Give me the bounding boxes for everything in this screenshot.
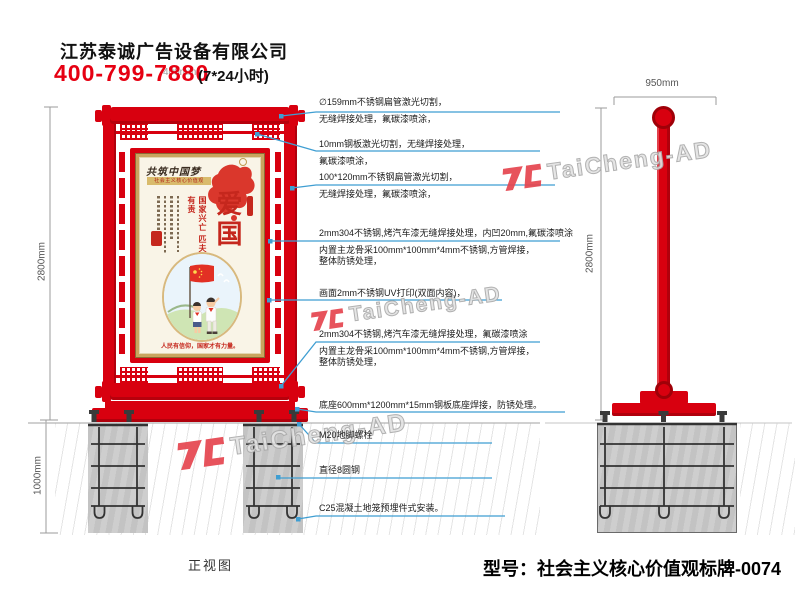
front-post-left [103, 121, 116, 393]
side-pole-joint [655, 381, 673, 399]
slogan-column-1: 国家兴亡 [198, 196, 207, 232]
drawing-canvas: 江苏泰诚广告设备有限公司 400mm 400-799-7880 (7*24小时)… [0, 0, 800, 600]
poster-seal-tag [247, 196, 253, 216]
annotation-line: 10mm钢板激光切割，无缝焊接处理， [319, 139, 470, 150]
annotation-line: M20地脚螺栓 [319, 430, 373, 441]
bottom-beam-endcap-left-outer [95, 386, 102, 398]
side-pole-cap [652, 106, 675, 129]
text-column [164, 196, 167, 254]
annotation-line: 画面2mm不锈钢UV打印(双面内容)， [319, 288, 466, 299]
poster-slogan: 国家兴亡 匹夫有责 [186, 196, 208, 260]
taicheng-logo-icon [492, 157, 544, 195]
annotation-line: 100*120mm不锈钢扁管激光切割， [319, 172, 458, 183]
annotation-line: 底座600mm*1200mm*15mm钢板底座焊接，防锈处理。 [319, 400, 542, 411]
lattice-rod [116, 375, 284, 378]
front-post-right [284, 121, 297, 393]
annotation-line: 整体防锈处理， [319, 256, 573, 267]
text-column [177, 196, 180, 252]
top-beam [110, 107, 290, 124]
front-view-label: 正视图 [188, 555, 233, 574]
annotation-line: ∅159mm不锈钢扁管激光切割， [319, 97, 447, 108]
footing-front-left [88, 424, 148, 533]
poster-headline: 爱国 [209, 190, 246, 250]
bottom-beam [110, 383, 290, 400]
footing-side-view [597, 424, 737, 533]
model-number-label: 型号：社会主义核心价值观标牌-0074 [483, 555, 781, 581]
top-lattice-row [116, 124, 284, 150]
top-beam-endcap-left-outer [95, 110, 102, 122]
poster-footer-quote: 人民有信仰，国家才有力量。 [142, 341, 258, 350]
annotation-8: M20地脚螺栓 [319, 430, 373, 441]
bottom-beam-endcap-right [289, 381, 298, 402]
kids-flag-illustration [164, 254, 240, 340]
ground-hatch-side [740, 423, 795, 535]
lattice-rod [116, 131, 284, 134]
top-beam-endcap-right-outer [298, 110, 305, 122]
annotation-2: 10mm钢板激光切割，无缝焊接处理， 氟碳漆喷涂， [319, 139, 470, 167]
lattice-strip-left [119, 152, 125, 357]
annotation-line: 氟碳漆喷涂， [319, 156, 470, 167]
poster-subtitle-band: 社会主义核心价值观 [147, 177, 211, 185]
annotation-9: 直径8圆钢 [319, 465, 360, 476]
annotation-7: 底座600mm*1200mm*15mm钢板底座焊接，防锈处理。 [319, 400, 542, 411]
annotation-line: 2mm304不锈钢,烤汽车漆无缝焊接处理，内凹20mm,氟碳漆喷涂 [319, 228, 573, 239]
annotation-3: 100*120mm不锈钢扁管激光切割， 无缝焊接处理，氟碳漆喷涂， [319, 172, 458, 200]
poster-illustration-oval [162, 252, 242, 342]
annotation-line: 无缝焊接处理，氟碳漆喷涂， [319, 114, 447, 125]
side-height-dimension: 2800mm [585, 224, 596, 284]
watermark-text: TaiCheng-AD [546, 135, 714, 185]
top-beam-endcap-right [289, 105, 298, 126]
hotline-hours: (7*24小时) [198, 65, 269, 86]
front-height-dimension: 2800mm [37, 232, 48, 292]
annotation-line: C25混凝土地笼预埋件式安装。 [319, 503, 444, 514]
annotation-10: C25混凝土地笼预埋件式安装。 [319, 503, 444, 514]
annotation-4: 2mm304不锈钢,烤汽车漆无缝焊接处理，内凹20mm,氟碳漆喷涂 内置主龙骨采… [319, 228, 573, 267]
poster-seal [151, 231, 162, 246]
annotation-line: 2mm304不锈钢,烤汽车漆无缝焊接处理，氟碳漆喷涂 [319, 329, 535, 340]
side-base-plate [612, 403, 716, 416]
lattice-strip-right [275, 152, 281, 357]
annotation-line: 内置主龙骨采100mm*100mm*4mm不锈钢,方管焊接， [319, 346, 535, 357]
annotation-line: 内置主龙骨采100mm*100mm*4mm不锈钢,方管焊接， [319, 245, 573, 256]
poster-calligraphy: 共筑中国梦 [146, 163, 201, 178]
side-width-dimension: 950mm [632, 78, 692, 89]
taicheng-logo-icon [165, 429, 228, 475]
bottom-beam-endcap-right-outer [298, 386, 305, 398]
annotation-5: 画面2mm不锈钢UV打印(双面内容)， [319, 288, 466, 299]
watermark-top-right: TaiCheng-AD [492, 133, 714, 195]
annotation-line: 整体防锈处理， [319, 357, 535, 368]
hotline-number: 400-799-7880 [54, 60, 209, 87]
annotation-1: ∅159mm不锈钢扁管激光切割， 无缝焊接处理，氟碳漆喷涂， [319, 97, 447, 125]
annotation-line: 直径8圆钢 [319, 465, 360, 476]
bottom-lattice-row [116, 358, 284, 383]
base-plate-lower [92, 408, 308, 422]
annotation-6: 2mm304不锈钢,烤汽车漆无缝焊接处理，氟碳漆喷涂 内置主龙骨采100mm*1… [319, 329, 535, 368]
text-column [170, 196, 173, 240]
front-underground-dimension: 1000mm [33, 446, 44, 506]
annotation-line: 无缝焊接处理，氟碳漆喷涂， [319, 189, 458, 200]
poster-gold-ornament [239, 158, 247, 166]
